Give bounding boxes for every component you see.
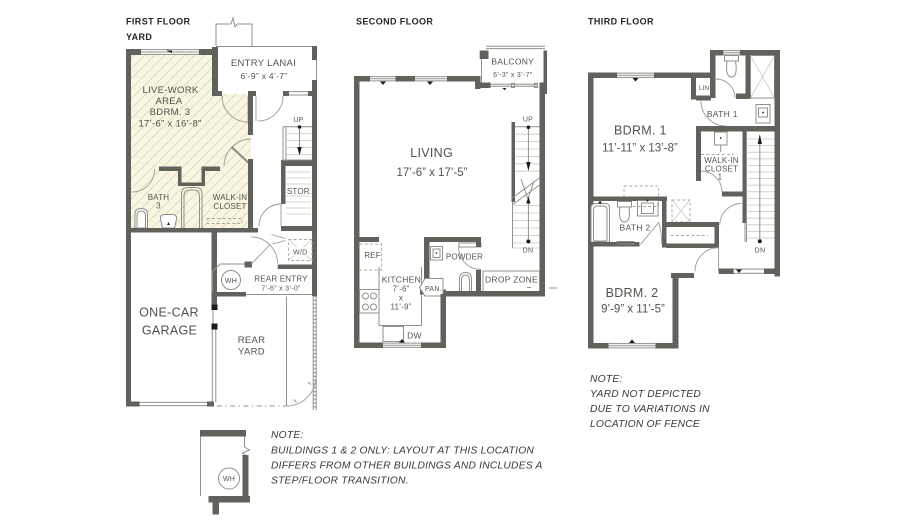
svg-text:CLOSET: CLOSET — [213, 202, 246, 211]
svg-text:WH: WH — [225, 278, 237, 285]
svg-text:REAR ENTRY: REAR ENTRY — [254, 275, 308, 284]
svg-text:KITCHEN: KITCHEN — [382, 275, 421, 285]
svg-text:W/D: W/D — [293, 250, 308, 257]
svg-text:ENTRY LANAI: ENTRY LANAI — [231, 58, 296, 69]
svg-text:x: x — [399, 293, 403, 302]
svg-text:BDRM. 1: BDRM. 1 — [614, 124, 667, 138]
svg-text:WALK-IN: WALK-IN — [213, 193, 247, 202]
svg-text:LIVE-WORK: LIVE-WORK — [142, 85, 198, 96]
svg-text:BDRM. 2: BDRM. 2 — [606, 286, 659, 300]
svg-text:YARD: YARD — [238, 347, 265, 358]
svg-text:LIN: LIN — [699, 85, 709, 92]
svg-text:3: 3 — [156, 202, 161, 211]
svg-text:THIRD FLOOR: THIRD FLOOR — [588, 17, 654, 27]
svg-text:DW: DW — [407, 331, 422, 341]
svg-text:BUILDINGS 1 & 2 ONLY: LAYOUT A: BUILDINGS 1 & 2 ONLY: LAYOUT AT THIS LOC… — [271, 446, 534, 457]
svg-text:6’-9” x 4’-7”: 6’-9” x 4’-7” — [241, 71, 288, 81]
svg-text:17’-6” x 17’-5”: 17’-6” x 17’-5” — [397, 167, 468, 179]
svg-text:6’-3” x 3’-7”: 6’-3” x 3’-7” — [493, 72, 533, 79]
svg-text:NOTE:: NOTE: — [271, 430, 303, 441]
svg-text:STOR.: STOR. — [287, 187, 312, 196]
svg-text:YARD: YARD — [126, 32, 152, 42]
svg-text:DIFFERS FROM OTHER BUILDINGS A: DIFFERS FROM OTHER BUILDINGS AND INCLUDE… — [271, 461, 543, 472]
svg-text:DN: DN — [523, 248, 534, 255]
svg-text:REF: REF — [364, 251, 381, 260]
svg-text:YARD NOT DEPICTED: YARD NOT DEPICTED — [590, 389, 701, 400]
svg-text:BATH 1: BATH 1 — [707, 109, 738, 119]
svg-text:11’-9”: 11’-9” — [390, 302, 411, 311]
svg-text:11’-11” x 13’-8”: 11’-11” x 13’-8” — [602, 142, 678, 154]
svg-text:DUE TO VARIATIONS IN: DUE TO VARIATIONS IN — [590, 404, 710, 415]
svg-text:LOCATION OF FENCE: LOCATION OF FENCE — [590, 419, 700, 430]
svg-text:WH: WH — [223, 476, 235, 483]
svg-text:DN: DN — [755, 248, 766, 255]
svg-text:UP: UP — [523, 117, 533, 124]
svg-text:FIRST FLOOR: FIRST FLOOR — [126, 17, 190, 27]
svg-text:7’-6”: 7’-6” — [392, 285, 409, 294]
svg-text:ONE-CAR: ONE-CAR — [139, 306, 199, 320]
svg-text:SECOND FLOOR: SECOND FLOOR — [356, 17, 433, 27]
svg-text:POWDER: POWDER — [446, 253, 483, 262]
svg-text:AREA: AREA — [155, 96, 182, 107]
svg-text:BDRM. 3: BDRM. 3 — [150, 107, 191, 118]
svg-text:STEP/FLOOR TRANSITION.: STEP/FLOOR TRANSITION. — [271, 476, 409, 487]
svg-text:GARAGE: GARAGE — [142, 324, 197, 338]
svg-text:17’-6” x 16’-8”: 17’-6” x 16’-8” — [138, 119, 201, 130]
svg-text:UP: UP — [293, 117, 303, 124]
svg-text:REAR: REAR — [238, 335, 266, 346]
svg-text:BALCONY: BALCONY — [491, 57, 534, 67]
svg-text:9’-9” x 11’-5”: 9’-9” x 11’-5” — [601, 304, 665, 316]
svg-text:NOTE:: NOTE: — [590, 374, 622, 385]
svg-text:LIVING: LIVING — [410, 146, 453, 160]
svg-text:7’-6” x 3’-0”: 7’-6” x 3’-0” — [261, 286, 301, 293]
svg-text:PAN.: PAN. — [425, 286, 442, 293]
svg-text:BATH 2: BATH 2 — [620, 223, 651, 233]
svg-text:DROP ZONE: DROP ZONE — [485, 275, 538, 285]
